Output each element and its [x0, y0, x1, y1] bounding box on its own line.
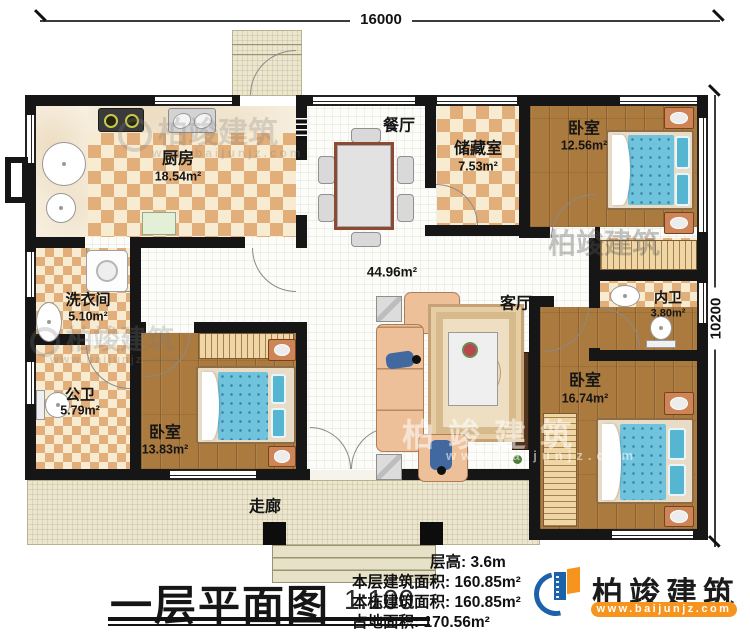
- dining-chair: [397, 194, 414, 222]
- dining-table: [334, 142, 394, 230]
- room-area-storage: 7.53m²: [458, 159, 498, 176]
- info-building-area: 本栋建筑面积: 160.85m²: [352, 590, 521, 612]
- window: [620, 95, 697, 106]
- room-label-bedroom-bl: 卧室: [149, 426, 181, 443]
- person-head: [437, 466, 446, 475]
- side-table: [376, 296, 402, 322]
- room-label-bedroom-tr: 卧室: [568, 122, 600, 139]
- window: [697, 118, 708, 232]
- room-area-laundry: 5.10m²: [68, 309, 108, 326]
- top-dimension-label: 16000: [350, 11, 412, 28]
- window: [697, 283, 708, 323]
- window: [25, 252, 36, 297]
- room-area-kitchen: 18.54m²: [155, 169, 202, 186]
- logo-building-orange-icon: [567, 567, 580, 594]
- watermark-url: www.baijunjz.com: [50, 354, 177, 366]
- window: [25, 362, 36, 404]
- fridge: [142, 212, 176, 235]
- nightstand: [664, 392, 694, 415]
- window: [155, 95, 232, 106]
- info-floor-height: 层高: 3.6m: [430, 550, 506, 572]
- bed: [196, 366, 296, 444]
- washing-machine: [86, 250, 128, 292]
- pass-shelf: [296, 118, 307, 140]
- room-label-living: 客厅: [500, 297, 532, 314]
- logo-building-blue-icon: [554, 572, 566, 600]
- room-label-dining: 餐厅: [383, 119, 415, 136]
- room-area-bedroom-br: 16.74m²: [562, 391, 609, 408]
- room-area-public-bath: 5.79m²: [60, 403, 100, 420]
- person-head: [412, 355, 421, 364]
- dining-chair: [397, 156, 414, 184]
- window: [612, 529, 693, 540]
- dining-chair: [351, 232, 381, 247]
- plan-title: 一层平面图: [110, 572, 330, 632]
- kitchen-basin-small: [46, 193, 76, 223]
- flower-vase: [464, 344, 476, 356]
- window: [170, 469, 256, 480]
- room-area-open: 44.96m²: [367, 265, 417, 282]
- room-label-kitchen: 厨房: [162, 152, 194, 169]
- dining-chair: [318, 194, 335, 222]
- porch-pillar: [263, 522, 286, 545]
- watermark-logo-icon: [118, 118, 152, 152]
- nightstand: [268, 446, 296, 467]
- toilet-tank: [646, 340, 676, 348]
- room-label-bedroom-br: 卧室: [569, 374, 601, 391]
- nightstand: [268, 339, 296, 361]
- window: [25, 115, 36, 163]
- room-label-storage: 储藏室: [454, 142, 502, 159]
- info-land-area: 占地面积: 170.56m²: [352, 610, 490, 632]
- info-floor-area: 本层建筑面积: 160.85m²: [352, 570, 521, 592]
- window: [313, 95, 415, 106]
- dining-chair: [351, 128, 381, 143]
- bathroom-sink: [610, 285, 640, 307]
- nightstand: [664, 506, 694, 527]
- window: [437, 95, 517, 106]
- nightstand: [664, 107, 694, 129]
- side-table: [376, 454, 402, 480]
- watermark-url: www.baijunjz.com: [446, 448, 638, 463]
- room-label-corridor: 走廊: [249, 500, 281, 517]
- dining-chair: [318, 156, 335, 184]
- room-label-laundry: 洗衣间: [65, 293, 110, 310]
- logo-website: www.baijunjz.com: [591, 602, 737, 617]
- room-area-bedroom-bl: 13.83m²: [142, 442, 189, 459]
- nightstand: [664, 212, 694, 234]
- kitchen-basin-large: [42, 142, 86, 186]
- coffee-table: [448, 332, 498, 406]
- room-area-bedroom-tr: 12.56m²: [561, 138, 608, 155]
- right-dimension-label: 10200: [708, 288, 725, 350]
- back-porch-step: [232, 44, 302, 45]
- room-area-inner-bath: 3.80m²: [651, 305, 686, 322]
- watermark-logo-icon: [30, 327, 60, 357]
- floor-plan-canvas: 16000 10200: [0, 0, 750, 632]
- toilet-tank: [36, 390, 45, 420]
- wall-bay: [5, 157, 28, 203]
- bed: [606, 130, 694, 210]
- porch-pillar: [420, 522, 443, 545]
- watermark: 柏竣建筑: [548, 222, 660, 262]
